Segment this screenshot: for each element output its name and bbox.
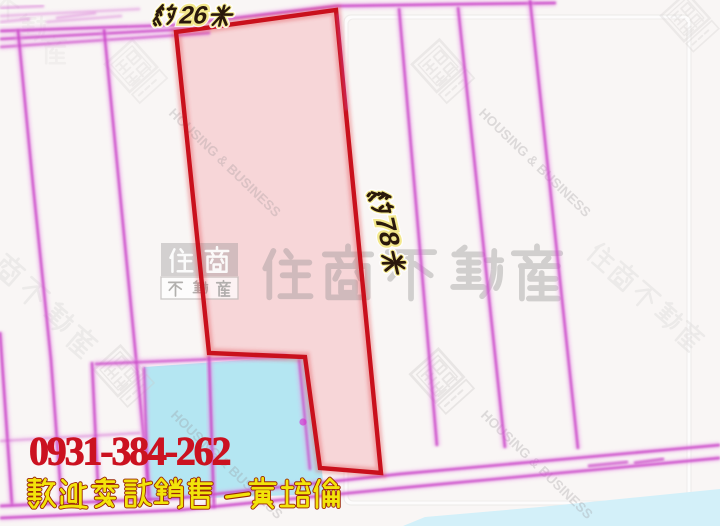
svg-text:0931-384-262: 0931-384-262 bbox=[29, 429, 230, 474]
svg-text:78: 78 bbox=[369, 216, 407, 247]
